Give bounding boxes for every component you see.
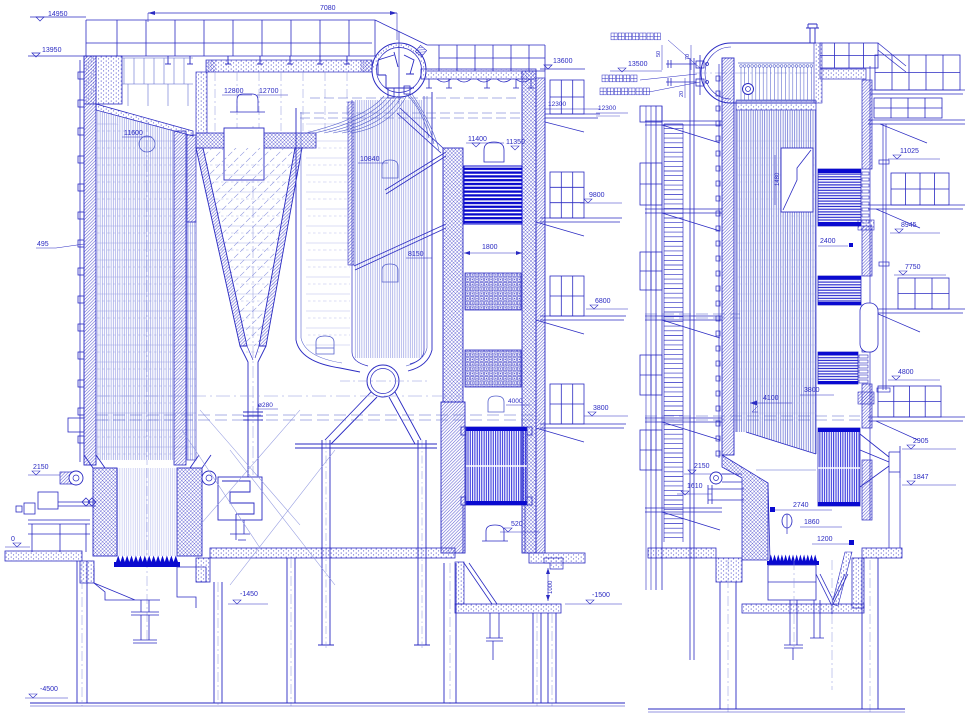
svg-text:1000: 1000 (548, 580, 554, 594)
svg-text:8945: 8945 (901, 222, 917, 229)
svg-text:3800: 3800 (804, 387, 820, 394)
svg-text:10840: 10840 (360, 156, 380, 163)
svg-text:495: 495 (37, 241, 49, 248)
svg-text:13600: 13600 (553, 58, 573, 65)
svg-text:520: 520 (511, 521, 523, 528)
svg-text:2150: 2150 (694, 463, 710, 470)
svg-text:13950: 13950 (42, 47, 62, 54)
svg-text:3800: 3800 (593, 405, 609, 412)
svg-text:1800: 1800 (482, 244, 498, 251)
svg-text:12300: 12300 (598, 105, 616, 112)
svg-text:20: 20 (679, 91, 685, 97)
svg-text:2150: 2150 (33, 464, 49, 471)
svg-text:2905: 2905 (913, 438, 929, 445)
svg-text:-1450: -1450 (240, 591, 258, 598)
svg-text:4100: 4100 (763, 395, 779, 402)
svg-text:-1500: -1500 (592, 592, 610, 599)
svg-text:12700: 12700 (259, 88, 279, 95)
svg-text:4800: 4800 (898, 369, 914, 376)
svg-text:1480: 1480 (775, 172, 781, 186)
svg-text:50: 50 (656, 51, 662, 57)
svg-text:11350: 11350 (506, 139, 525, 146)
svg-text:11600: 11600 (124, 130, 143, 137)
svg-text:7080: 7080 (320, 5, 336, 12)
svg-text:12300: 12300 (548, 101, 566, 108)
svg-text:1860: 1860 (804, 519, 820, 526)
svg-text:11025: 11025 (900, 148, 919, 155)
svg-text:1610: 1610 (687, 483, 703, 490)
svg-text:2740: 2740 (793, 502, 809, 509)
svg-text:0: 0 (11, 536, 15, 543)
svg-text:9800: 9800 (589, 192, 605, 199)
svg-text:1847: 1847 (913, 474, 929, 481)
svg-text:13500: 13500 (628, 61, 648, 68)
svg-text:6800: 6800 (595, 298, 611, 305)
svg-text:-4500: -4500 (40, 686, 58, 693)
svg-text:2400: 2400 (820, 238, 836, 245)
svg-text:4000: 4000 (508, 398, 523, 405)
svg-text:ø280: ø280 (258, 402, 273, 409)
svg-text:8150: 8150 (408, 251, 424, 258)
svg-text:11400: 11400 (468, 136, 487, 143)
svg-text:1200: 1200 (817, 536, 833, 543)
svg-text:7750: 7750 (905, 264, 921, 271)
